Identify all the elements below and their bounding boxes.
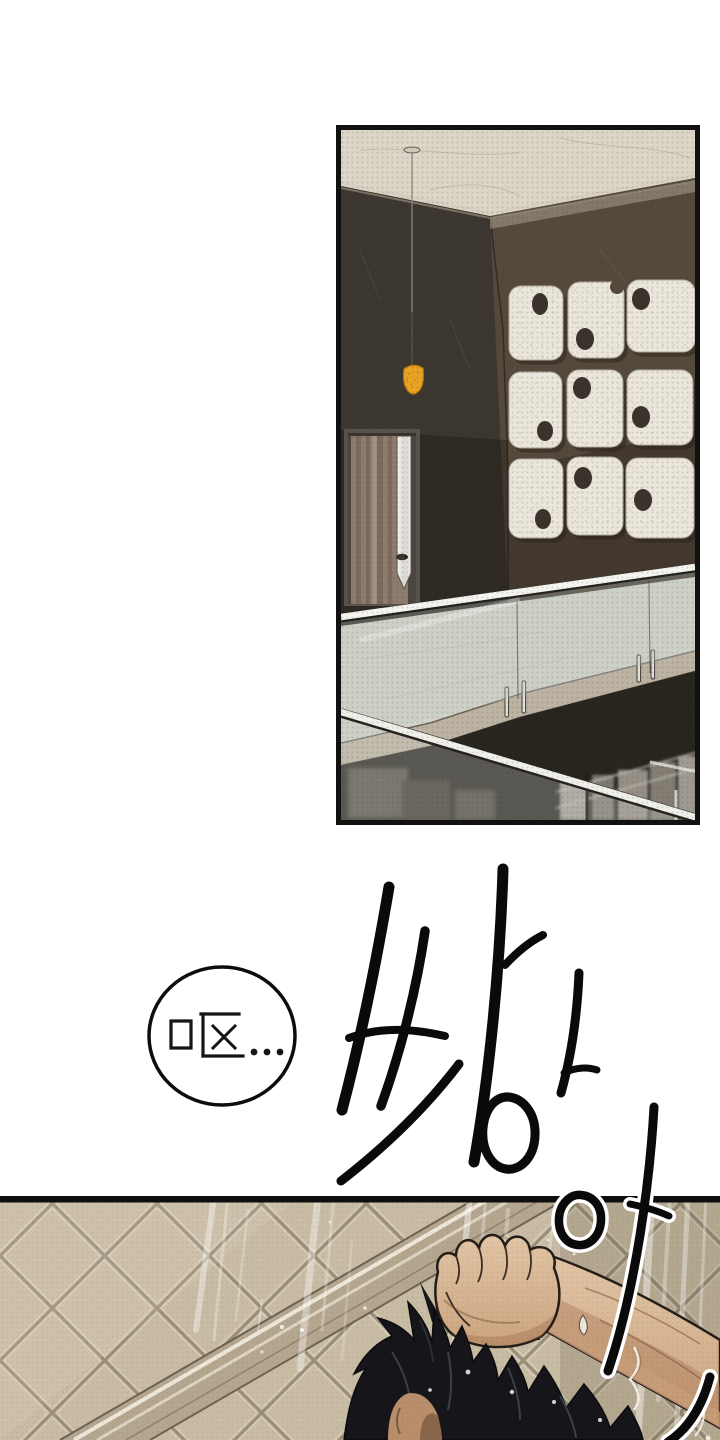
sfx-stroke-ssa-left2 xyxy=(381,931,425,1106)
panel-shower xyxy=(0,1196,720,1440)
halftone-overlay-p2 xyxy=(0,1196,720,1440)
halftone-overlay-p1 xyxy=(341,130,695,820)
panel-interior xyxy=(341,130,699,820)
speech-bubble xyxy=(149,967,295,1105)
comic-page: 呕... 싸아아 xyxy=(0,0,720,1440)
comic-artwork xyxy=(0,0,720,1440)
sfx-stroke-ssa-left xyxy=(342,887,389,1110)
panel-shower-top-border xyxy=(0,1196,720,1203)
bubble-ellipsis-dots xyxy=(251,1049,284,1056)
